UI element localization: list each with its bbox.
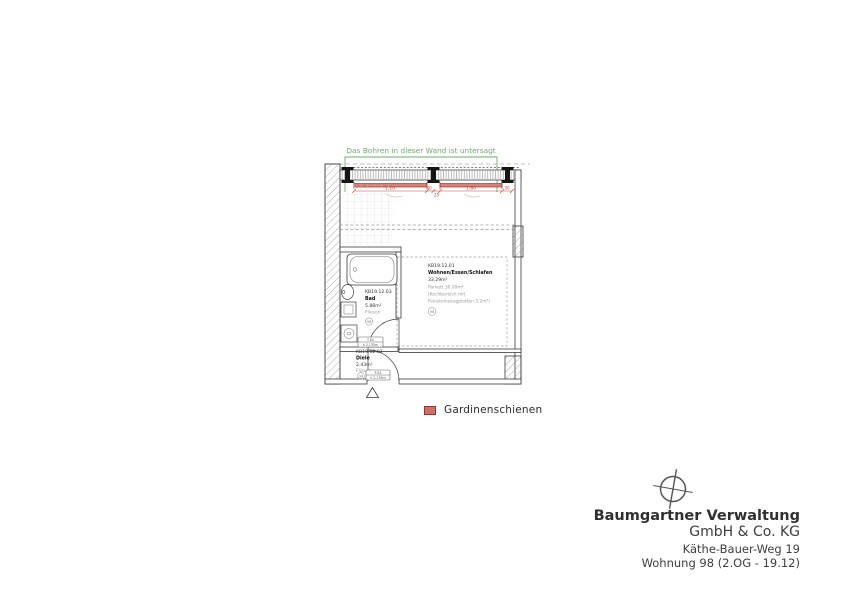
north-compass-icon	[652, 468, 696, 512]
door-tag-id: T.02	[373, 371, 381, 375]
room-note1: (Kochbereich mit	[428, 292, 465, 298]
legend-label: Gardinenschienen	[444, 404, 542, 416]
unit-mark: 98	[430, 310, 435, 314]
room-name: Wohnen/Essen/Schlafen	[428, 270, 493, 276]
unit-mark: 98	[359, 374, 363, 378]
dim-gap1: 30	[426, 186, 432, 191]
floor-plan-svg: Das Bohren in dieser Wand ist untersagt	[320, 140, 545, 440]
room-floor: Parkett 30.09m²	[428, 285, 464, 291]
room-area: 5.88m²	[365, 303, 382, 309]
dim-gap2: 25	[434, 193, 440, 198]
room-id: KB19.12.03	[365, 289, 392, 295]
legend: Gardinenschienen	[424, 404, 542, 416]
door-tag-1: T.01 h 2.135m	[358, 337, 383, 347]
kitchen-tile-area	[344, 184, 393, 247]
title-block: Baumgartner Verwaltung GmbH & Co. KG Kät…	[594, 508, 800, 570]
door-tag-size: h 2.135m	[363, 343, 378, 347]
room-area: 2.43m²	[356, 362, 373, 368]
room-note2: Feinsteinzeugplatten 3.2m²)	[428, 299, 490, 305]
room-label-wohnen: KB19.12.01 Wohnen/Essen/Schlafen 33.29m²…	[428, 263, 493, 315]
room-id: KB19.12.02	[356, 349, 383, 355]
room-name: Bad	[365, 296, 376, 302]
wall-pier	[513, 226, 523, 257]
room-label-bad: KB19.12.03 Bad 5.88m² Fliesen 98	[365, 289, 392, 325]
no-drilling-annotation: Das Bohren in dieser Wand ist untersagt	[346, 146, 495, 155]
bathtub	[347, 254, 397, 285]
toilet	[341, 302, 356, 317]
dim-rail2: 1.80	[466, 186, 476, 192]
washbasin	[342, 285, 354, 300]
address: Käthe-Bauer-Weg 19	[594, 542, 800, 556]
company-name: Baumgartner Verwaltung	[594, 508, 800, 524]
unit-label: Wohnung 98 (2.OG - 19.12)	[594, 556, 800, 570]
door-tag-size: h 2.135m	[370, 376, 385, 380]
room-area: 33.29m²	[428, 277, 448, 283]
wall-bottom	[325, 349, 521, 384]
door-tag-id: T.01	[366, 338, 374, 342]
entrance-marker-triangle	[367, 388, 379, 398]
exterior-wall-left	[325, 164, 340, 384]
floor-plan: Das Bohren in dieser Wand ist untersagt	[320, 140, 545, 440]
unit-mark: 98	[367, 320, 372, 324]
wall-room-south	[399, 349, 521, 353]
company-suffix: GmbH & Co. KG	[594, 524, 800, 540]
curtain-rail-legend-swatch	[424, 406, 436, 415]
floor-plan-sheet: Das Bohren in dieser Wand ist untersagt	[0, 0, 841, 595]
room-id: KB19.12.01	[428, 263, 455, 269]
door-tag-2: T.02 h 2.135m	[366, 370, 390, 380]
dim-gap3: 30	[504, 186, 510, 191]
room-name: Diele	[356, 356, 371, 362]
washing-machine	[341, 325, 357, 342]
room-floor: Fliesen	[365, 310, 381, 316]
